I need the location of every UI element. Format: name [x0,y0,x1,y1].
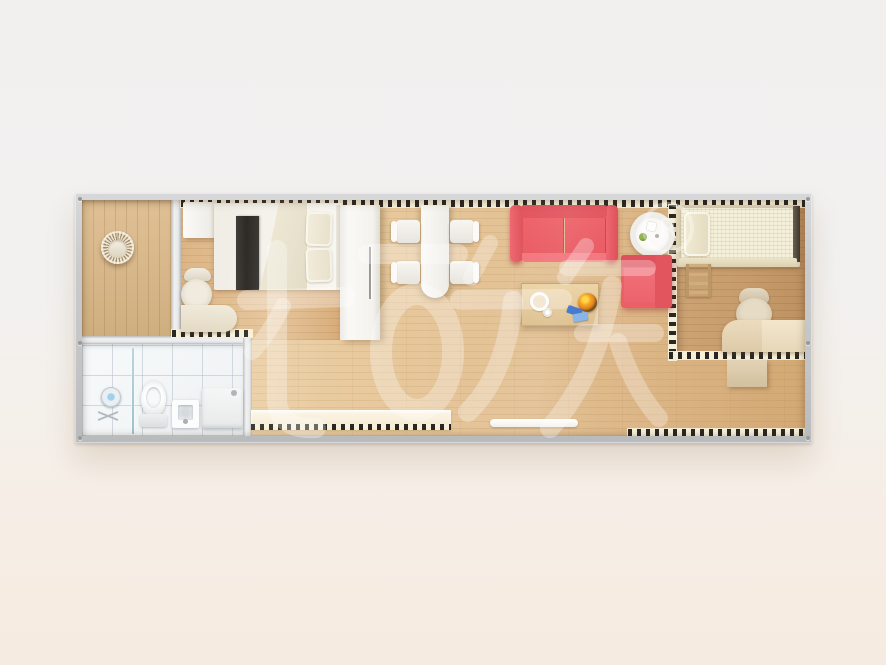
single-bed-edge-shadow [793,206,800,262]
wardrobe [340,205,380,340]
door-mat [490,419,578,427]
napkin [646,221,656,231]
desk [181,305,237,332]
cup [543,308,552,317]
hanging-chair-seat [108,240,127,258]
wash-basin-bowl [178,405,193,420]
dining-chair [450,220,474,243]
toilet-tank [140,414,167,427]
floorplan-container [75,193,812,443]
wall-porch-divider [171,200,181,336]
storage-bench [251,410,451,430]
frame-screw [806,197,810,201]
vanity-cabinet [202,388,243,428]
wall-bottom-right-dashed [628,429,805,436]
sofa-cushion [523,218,564,257]
frame-screw [806,436,810,440]
book [572,312,588,322]
armchair [621,255,672,308]
wall-bathroom-top [82,336,252,344]
bed-pillow [305,248,332,283]
single-bed-pillow [684,212,710,256]
wall-bedroom2-bottom-dashed [669,352,805,359]
scene: R [0,0,886,665]
floor-porch [82,200,171,336]
bed-pillow [305,212,332,247]
plant-pot [639,233,647,241]
side-table [630,212,675,257]
bedside-cabinet [183,202,215,238]
dining-table [421,205,449,298]
bed-duvet [255,203,307,290]
frame-screw [806,341,810,345]
storage-bench-dashed-edge [251,424,451,430]
shower-glass-divider [132,348,134,434]
sofa [510,205,618,262]
armchair-seat [624,268,655,302]
single-bed [677,205,800,267]
desk-2 [722,320,805,352]
dining-chair [396,261,420,284]
shower-drain [96,411,120,421]
frame-screw [78,436,82,440]
coffee-table [521,283,599,326]
sofa-front-edge [522,253,606,262]
dining-chair [450,261,474,284]
double-bed [214,203,342,290]
bed-runner [236,216,259,290]
desk-2-top [762,320,805,352]
toilet [141,381,166,417]
wash-basin [172,400,199,428]
small-cup [655,234,659,238]
sofa-backrest [521,205,607,218]
hanging-chair [101,231,134,264]
sofa-cushion [565,218,606,257]
shower-head [101,387,121,407]
floorplan-interior [82,200,805,436]
armchair-backrest [655,255,672,308]
dining-chair [396,220,420,243]
loft-ladder [686,264,711,297]
low-cabinet [727,360,767,387]
wardrobe-handle [369,247,371,299]
